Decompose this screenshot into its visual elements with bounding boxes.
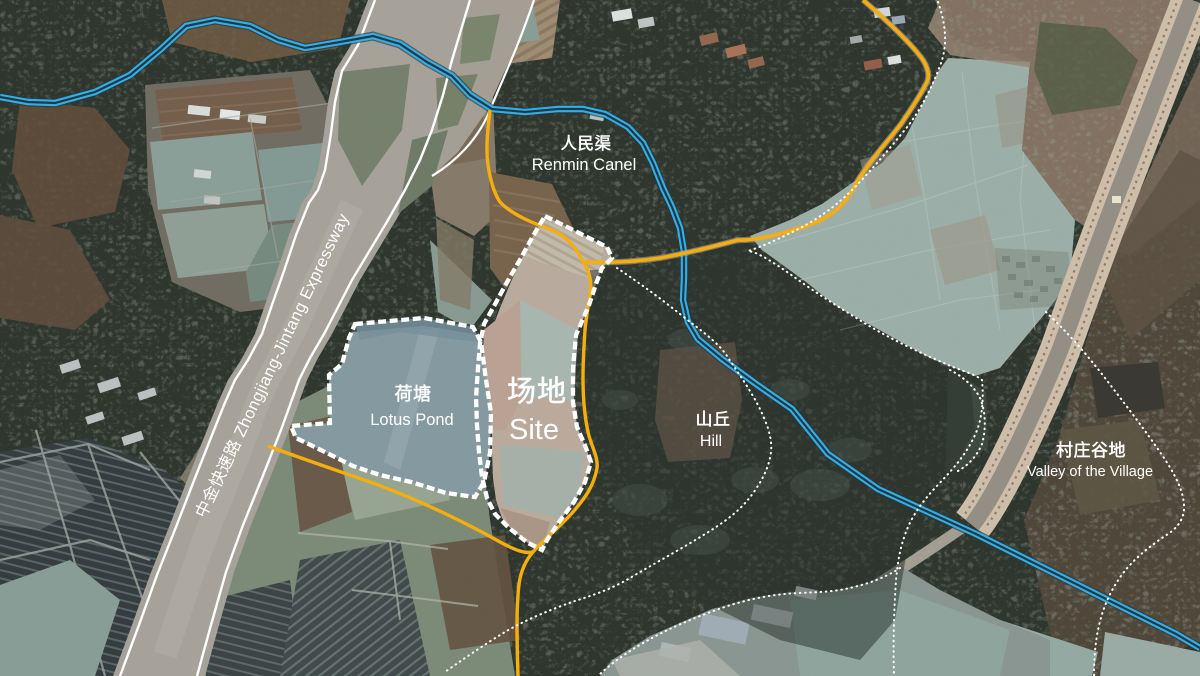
svg-text:Valley of the Village: Valley of the Village: [1027, 464, 1153, 480]
svg-text:Site: Site: [509, 414, 559, 446]
svg-text:荷塘: 荷塘: [395, 384, 432, 404]
svg-text:Renmin Canel: Renmin Canel: [532, 156, 637, 174]
svg-text:人民渠: 人民渠: [561, 134, 612, 153]
svg-text:场地: 场地: [507, 375, 567, 408]
svg-text:Hill: Hill: [700, 433, 722, 450]
svg-text:山丘: 山丘: [696, 410, 731, 429]
svg-text:Lotus Pond: Lotus Pond: [370, 411, 453, 429]
svg-text:村庄谷地: 村庄谷地: [1056, 441, 1126, 460]
